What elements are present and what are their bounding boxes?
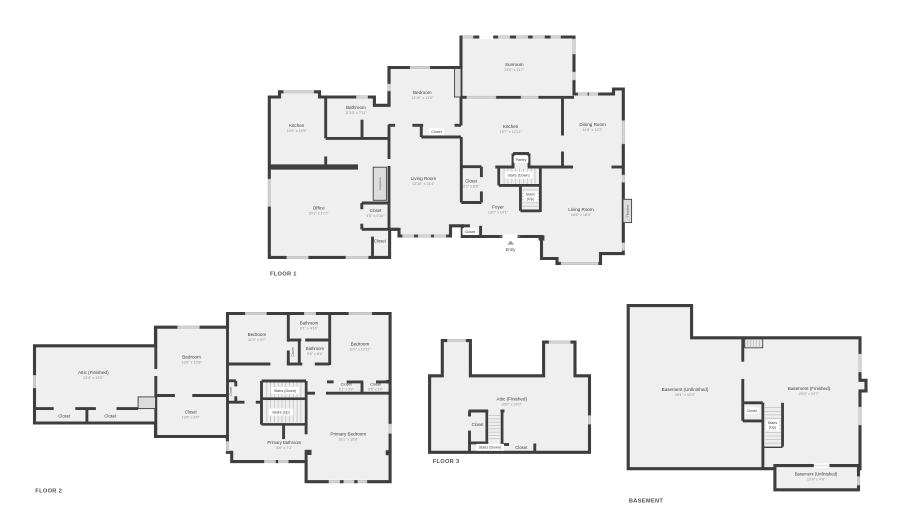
svg-text:Stairs (Down): Stairs (Down) — [479, 446, 501, 450]
svg-text:Stairs (Down): Stairs (Down) — [507, 174, 529, 178]
svg-text:5'5" x 3'9": 5'5" x 3'9" — [368, 388, 384, 392]
svg-text:Closet: Closet — [370, 208, 383, 213]
svg-text:Stairs (Up): Stairs (Up) — [272, 410, 290, 414]
svg-text:FLOOR 2: FLOOR 2 — [35, 489, 62, 495]
svg-text:Closet: Closet — [291, 347, 295, 356]
svg-text:Bedroom: Bedroom — [248, 332, 267, 337]
svg-text:19'9" x 4'9": 19'9" x 4'9" — [807, 478, 826, 482]
svg-text:Closet: Closet — [341, 382, 353, 387]
svg-text:13'10" x 21'4": 13'10" x 21'4" — [412, 182, 435, 186]
svg-text:11'10" x 7'11": 11'10" x 7'11" — [345, 111, 367, 115]
svg-text:FLOOR 3: FLOOR 3 — [433, 459, 460, 465]
svg-text:Closet: Closet — [58, 414, 71, 419]
svg-text:13'8" x 6'0": 13'8" x 6'0" — [182, 416, 201, 420]
svg-text:Foyer: Foyer — [492, 205, 504, 210]
svg-text:Bathroom: Bathroom — [300, 320, 319, 325]
svg-text:23'0" x 11'7": 23'0" x 11'7" — [504, 68, 525, 72]
svg-text:Living Room: Living Room — [568, 207, 594, 212]
svg-text:15'7" x 12'11": 15'7" x 12'11" — [500, 130, 523, 134]
svg-text:10'9" x 14'5": 10'9" x 14'5" — [287, 129, 308, 133]
svg-text:Dining Room: Dining Room — [579, 122, 606, 127]
svg-text:Pantry: Pantry — [516, 158, 527, 162]
svg-text:Stairs: Stairs — [768, 421, 778, 425]
svg-text:23'0" x 24'7": 23'0" x 24'7" — [799, 392, 820, 396]
svg-text:Fireplace: Fireplace — [625, 204, 629, 217]
svg-text:Primary Bedroom: Primary Bedroom — [330, 432, 366, 437]
svg-text:11'4" x 9'7": 11'4" x 9'7" — [248, 338, 267, 342]
svg-text:Office: Office — [313, 206, 325, 211]
svg-text:11'4" x 12'11": 11'4" x 12'11" — [349, 348, 371, 352]
svg-text:Bathroom: Bathroom — [346, 105, 366, 110]
svg-text:13'10" x 11'0": 13'10" x 11'0" — [411, 96, 434, 100]
svg-text:Bedroom: Bedroom — [351, 342, 370, 347]
svg-text:29'1" x 32'0": 29'1" x 32'0" — [675, 393, 696, 397]
svg-text:Kitchen: Kitchen — [503, 124, 519, 129]
svg-text:Primary Bathroom: Primary Bathroom — [267, 440, 301, 445]
svg-text:Stairs: Stairs — [526, 192, 536, 196]
svg-text:Stairs (Down): Stairs (Down) — [274, 389, 296, 393]
svg-text:20'1" x 17'2": 20'1" x 17'2" — [309, 212, 330, 216]
svg-text:Closet: Closet — [370, 382, 382, 387]
svg-text:Closet: Closet — [747, 409, 757, 413]
svg-text:Sunroom: Sunroom — [505, 62, 524, 67]
svg-text:23'4" x 13'0": 23'4" x 13'0" — [83, 376, 104, 380]
svg-text:Bathroom: Bathroom — [306, 346, 325, 351]
svg-text:Living Room: Living Room — [411, 176, 437, 181]
svg-text:(Up): (Up) — [769, 426, 776, 430]
svg-text:18'6" x 18'4": 18'6" x 18'4" — [571, 213, 592, 217]
svg-text:Kitchen: Kitchen — [289, 123, 305, 128]
svg-text:11'6" x 14'2": 11'6" x 14'2" — [583, 128, 604, 132]
svg-text:FLOOR 1: FLOOR 1 — [270, 271, 297, 277]
svg-text:Attic (Finished): Attic (Finished) — [496, 397, 527, 402]
svg-text:Closet: Closet — [104, 414, 117, 419]
svg-text:Fireplace: Fireplace — [378, 177, 382, 190]
svg-text:Closet: Closet — [374, 238, 387, 243]
svg-text:5'1" x 3'9": 5'1" x 3'9" — [339, 388, 355, 392]
svg-text:Closet: Closet — [515, 445, 528, 450]
svg-text:13'0" x 10'1": 13'0" x 10'1" — [488, 211, 509, 215]
svg-text:9'1" x 4'10": 9'1" x 4'10" — [300, 327, 319, 331]
svg-text:Closet: Closet — [465, 230, 475, 234]
svg-text:Basement (Finished): Basement (Finished) — [788, 386, 831, 391]
svg-text:3'1" x 6'6": 3'1" x 6'6" — [463, 185, 480, 189]
svg-text:(Up): (Up) — [527, 197, 534, 201]
svg-text:5'6" x 8'4": 5'6" x 8'4" — [307, 352, 324, 356]
svg-text:13'8" x 13'8": 13'8" x 13'8" — [181, 361, 202, 365]
svg-text:BASEMENT: BASEMENT — [629, 499, 664, 505]
svg-text:Basement (Unfinished): Basement (Unfinished) — [795, 472, 838, 477]
svg-text:Attic (Finished): Attic (Finished) — [78, 370, 109, 375]
svg-text:4'5" x 4'10": 4'5" x 4'10" — [366, 214, 385, 218]
svg-text:Closet: Closet — [185, 410, 198, 415]
svg-text:Closet: Closet — [229, 387, 233, 396]
svg-text:Bedroom: Bedroom — [413, 90, 432, 95]
svg-text:Closet: Closet — [431, 130, 441, 134]
svg-text:Entry: Entry — [506, 247, 517, 252]
svg-text:Closet: Closet — [472, 422, 485, 427]
svg-text:8'6" x 7'1": 8'6" x 7'1" — [276, 446, 293, 450]
svg-text:36'0" x 24'0": 36'0" x 24'0" — [502, 403, 523, 407]
svg-text:Closet: Closet — [465, 179, 478, 184]
svg-text:Basement (Unfinished): Basement (Unfinished) — [662, 387, 709, 392]
svg-text:Bedroom: Bedroom — [182, 355, 201, 360]
svg-text:16'1" x 15'8": 16'1" x 15'8" — [338, 438, 359, 442]
